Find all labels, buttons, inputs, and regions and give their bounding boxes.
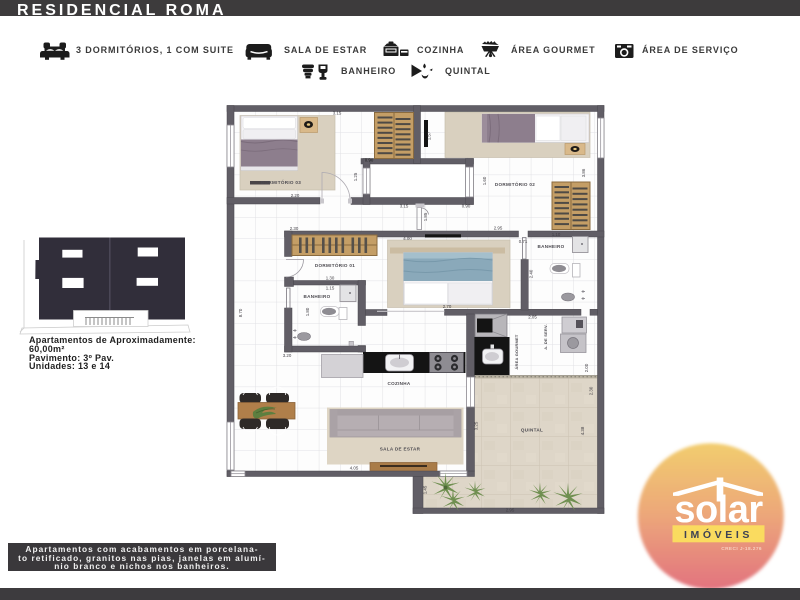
svg-text:1.85: 1.85: [423, 212, 428, 221]
svg-text:1.45: 1.45: [423, 485, 428, 494]
svg-text:COZINHA: COZINHA: [387, 381, 410, 386]
svg-text:0.71: 0.71: [519, 239, 528, 244]
svg-text:DORMITÓRIO 03: DORMITÓRIO 03: [261, 178, 301, 185]
svg-text:BANHEIRO: BANHEIRO: [538, 244, 565, 249]
svg-text:ÁREA GOURMET: ÁREA GOURMET: [514, 334, 519, 369]
svg-text:4.38: 4.38: [580, 426, 585, 435]
svg-text:4.00: 4.00: [403, 236, 412, 241]
svg-text:2.05: 2.05: [528, 315, 537, 320]
svg-text:1.30: 1.30: [326, 276, 335, 281]
svg-text:2.40: 2.40: [529, 269, 534, 278]
svg-text:SALA DE ESTAR: SALA DE ESTAR: [380, 447, 421, 452]
svg-text:4.05: 4.05: [350, 466, 359, 471]
svg-text:2.70: 2.70: [443, 304, 452, 309]
svg-text:3.15: 3.15: [333, 111, 342, 116]
svg-text:solar: solar: [674, 489, 763, 531]
svg-text:3.25: 3.25: [474, 421, 479, 430]
svg-text:1.80: 1.80: [305, 307, 310, 316]
svg-text:QUINTAL: QUINTAL: [521, 428, 543, 433]
svg-text:A. DE SERV.: A. DE SERV.: [543, 324, 548, 350]
svg-text:1.25: 1.25: [353, 172, 358, 181]
svg-text:3.15: 3.15: [400, 204, 409, 209]
svg-text:3.86: 3.86: [581, 168, 586, 177]
svg-text:1.15: 1.15: [326, 286, 335, 291]
svg-text:1.57: 1.57: [427, 131, 432, 140]
svg-text:2.00: 2.00: [584, 363, 589, 372]
svg-text:2.30: 2.30: [589, 386, 594, 395]
svg-text:1.10: 1.10: [552, 232, 561, 237]
svg-text:DORMITÓRIO 02: DORMITÓRIO 02: [495, 180, 535, 187]
svg-text:0.90: 0.90: [462, 204, 471, 209]
svg-text:DORMITÓRIO 01: DORMITÓRIO 01: [315, 261, 355, 268]
svg-text:2.95: 2.95: [506, 508, 515, 513]
svg-text:3.20: 3.20: [283, 353, 292, 358]
svg-text:8.70: 8.70: [238, 308, 243, 317]
svg-text:2.20: 2.20: [291, 193, 300, 198]
svg-text:1.60: 1.60: [482, 176, 487, 185]
svg-text:2.95: 2.95: [494, 226, 503, 231]
svg-text:IMÓVEIS: IMÓVEIS: [684, 528, 753, 541]
svg-text:2.30: 2.30: [290, 226, 299, 231]
svg-text:BANHEIRO: BANHEIRO: [304, 294, 331, 299]
svg-text:0.90: 0.90: [365, 158, 374, 163]
svg-text:CRECI J-18.276: CRECI J-18.276: [721, 546, 762, 552]
